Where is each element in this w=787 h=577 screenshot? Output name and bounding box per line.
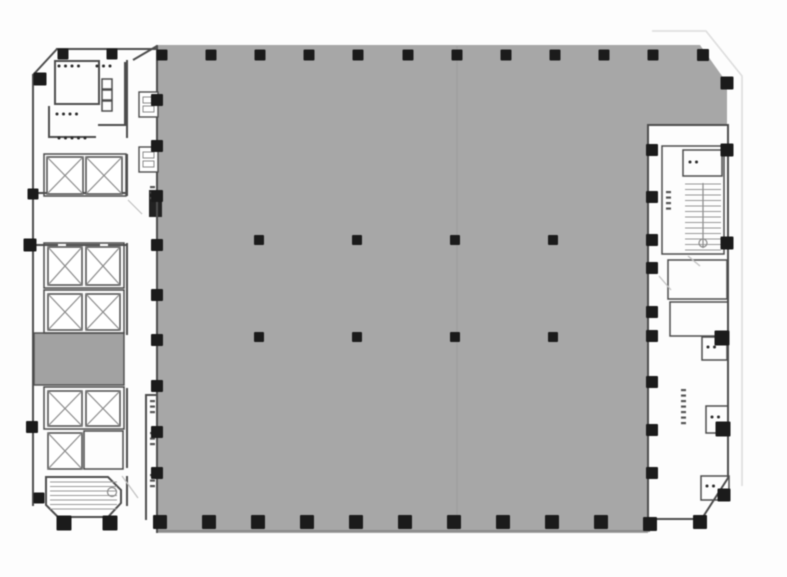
label-dot <box>102 65 105 68</box>
wall <box>126 476 128 506</box>
room-outline <box>102 101 112 111</box>
structural-column <box>646 234 658 246</box>
structural-column <box>646 467 658 479</box>
door-swing <box>128 200 142 214</box>
structural-column <box>643 517 657 531</box>
structural-column <box>716 422 731 437</box>
structural-column <box>550 50 561 61</box>
structural-column <box>545 515 559 529</box>
structural-column <box>352 332 362 342</box>
structural-column <box>353 50 364 61</box>
label-dash <box>150 411 155 413</box>
label-dash <box>150 485 155 487</box>
elevator-shaft <box>48 294 82 330</box>
illegible-label-marks <box>96 65 112 68</box>
elevator-shaft <box>86 391 120 426</box>
label-dash <box>681 422 686 424</box>
wall <box>54 60 56 105</box>
label-dash <box>150 443 155 445</box>
wall <box>98 60 100 105</box>
label-dot <box>711 416 714 419</box>
stair-room-outline <box>46 477 121 517</box>
structural-column <box>254 235 264 245</box>
elevator-shaft <box>47 157 83 194</box>
structural-column <box>721 77 734 90</box>
illegible-label-marks-vertical <box>150 400 155 413</box>
elevator-shaft <box>48 391 82 426</box>
label-dash <box>150 186 155 188</box>
structural-column <box>693 515 707 529</box>
structural-column <box>26 421 38 433</box>
wall <box>66 244 100 246</box>
structural-column <box>151 140 163 152</box>
floor-plan-image <box>0 0 787 577</box>
illegible-label-marks-vertical <box>681 389 686 424</box>
structural-column <box>646 330 658 342</box>
structural-column <box>450 332 460 342</box>
room-outline <box>668 260 727 299</box>
elevator-shaft <box>86 157 122 194</box>
label-dot <box>71 137 74 140</box>
structural-column <box>447 515 461 529</box>
structural-column <box>151 190 163 202</box>
label-dash <box>681 400 686 402</box>
label-dot <box>64 137 67 140</box>
wall <box>647 125 649 520</box>
structural-column <box>594 515 608 529</box>
structural-column <box>153 515 167 529</box>
elevator-shaft <box>86 247 120 285</box>
label-dot <box>689 161 692 164</box>
label-dot <box>707 346 710 349</box>
wall-diagonal <box>33 49 57 75</box>
label-dash <box>666 202 671 204</box>
elevator-shaft <box>48 433 82 469</box>
label-dot <box>58 65 61 68</box>
structural-column <box>721 237 734 250</box>
label-dot <box>71 65 74 68</box>
structural-column <box>157 50 168 61</box>
wall <box>98 124 126 126</box>
structural-column <box>57 516 72 531</box>
structural-column <box>697 49 709 61</box>
wall <box>48 106 50 138</box>
room-outline <box>84 431 123 469</box>
structural-column <box>452 50 463 61</box>
structural-column <box>599 50 610 61</box>
illegible-label-marks <box>706 485 716 488</box>
structural-column <box>496 515 510 529</box>
room-outline <box>683 150 722 176</box>
label-dot <box>109 65 112 68</box>
label-dot <box>695 161 698 164</box>
elevator-shaft <box>86 294 120 330</box>
structural-column <box>646 144 658 156</box>
structural-column <box>151 289 163 301</box>
structural-column <box>151 334 163 346</box>
wall <box>145 394 147 520</box>
structural-column <box>251 515 265 529</box>
label-dot <box>69 113 72 116</box>
structural-column <box>718 489 731 502</box>
structural-column <box>646 376 658 388</box>
structural-column <box>206 50 217 61</box>
label-dot <box>62 113 65 116</box>
wall <box>54 103 100 105</box>
illegible-label-marks <box>711 416 721 419</box>
stairwell-left <box>46 477 121 517</box>
structural-column <box>34 493 45 504</box>
structural-column <box>646 424 658 436</box>
structural-column <box>151 239 163 251</box>
structural-column <box>34 73 47 86</box>
room-outline <box>102 90 112 100</box>
structural-column <box>103 516 118 531</box>
elevator-shaft <box>48 247 82 285</box>
label-dash <box>666 191 671 193</box>
label-dot <box>717 416 720 419</box>
structural-column <box>151 94 163 106</box>
structural-column <box>548 332 558 342</box>
wall <box>32 74 34 506</box>
illegible-label-marks <box>56 113 79 116</box>
structural-column <box>254 332 264 342</box>
structural-column <box>28 189 39 200</box>
structural-column <box>715 331 730 346</box>
label-dot <box>77 65 80 68</box>
wall <box>126 388 128 468</box>
structural-column <box>58 49 69 60</box>
structural-column <box>151 426 163 438</box>
wall <box>36 244 58 246</box>
label-dash <box>681 411 686 413</box>
label-dash <box>681 395 686 397</box>
structural-column <box>107 49 118 60</box>
structural-column <box>721 144 734 157</box>
structural-column <box>255 50 266 61</box>
label-dot <box>712 485 715 488</box>
structural-column <box>450 235 460 245</box>
label-dot <box>84 137 87 140</box>
label-dash <box>681 406 686 408</box>
label-dash <box>681 417 686 419</box>
structural-column <box>300 515 314 529</box>
wall <box>126 60 128 138</box>
illegible-label-marks <box>689 161 699 164</box>
service-room <box>34 333 124 385</box>
structural-column <box>403 50 414 61</box>
label-dot <box>96 65 99 68</box>
stairwell-right <box>685 183 721 250</box>
label-dash <box>150 400 155 402</box>
label-dot <box>58 137 61 140</box>
structural-column <box>24 239 37 252</box>
door-swing <box>122 476 138 498</box>
wall <box>126 243 128 335</box>
structural-column <box>202 515 216 529</box>
label-dot <box>706 485 709 488</box>
structural-column <box>151 380 163 392</box>
label-dot <box>56 113 59 116</box>
structural-column <box>646 262 658 274</box>
label-dash <box>150 406 155 408</box>
structural-column <box>352 235 362 245</box>
label-dot <box>713 346 716 349</box>
wall <box>647 124 729 126</box>
door-swing <box>688 256 700 266</box>
illegible-label-marks-vertical <box>666 191 671 210</box>
structural-column <box>646 306 658 318</box>
label-dot <box>77 137 80 140</box>
label-dash <box>681 389 686 391</box>
illegible-label-marks <box>58 65 81 68</box>
label-dash <box>666 197 671 199</box>
structural-column <box>501 50 512 61</box>
building-floor-plan <box>0 0 787 577</box>
label-dot <box>64 65 67 68</box>
room-outline <box>102 79 112 89</box>
structural-column <box>646 191 658 203</box>
label-dash <box>666 208 671 210</box>
illegible-label-marks <box>707 346 717 349</box>
wall <box>124 62 126 126</box>
structural-column <box>349 515 363 529</box>
wall <box>54 60 100 62</box>
structural-column <box>398 515 412 529</box>
structural-column <box>304 50 315 61</box>
label-dash <box>150 480 155 482</box>
structural-column <box>151 467 163 479</box>
structural-column <box>548 235 558 245</box>
structural-column <box>648 50 659 61</box>
door-swing <box>659 276 671 290</box>
label-dot <box>75 113 78 116</box>
open-office-area <box>157 45 727 533</box>
